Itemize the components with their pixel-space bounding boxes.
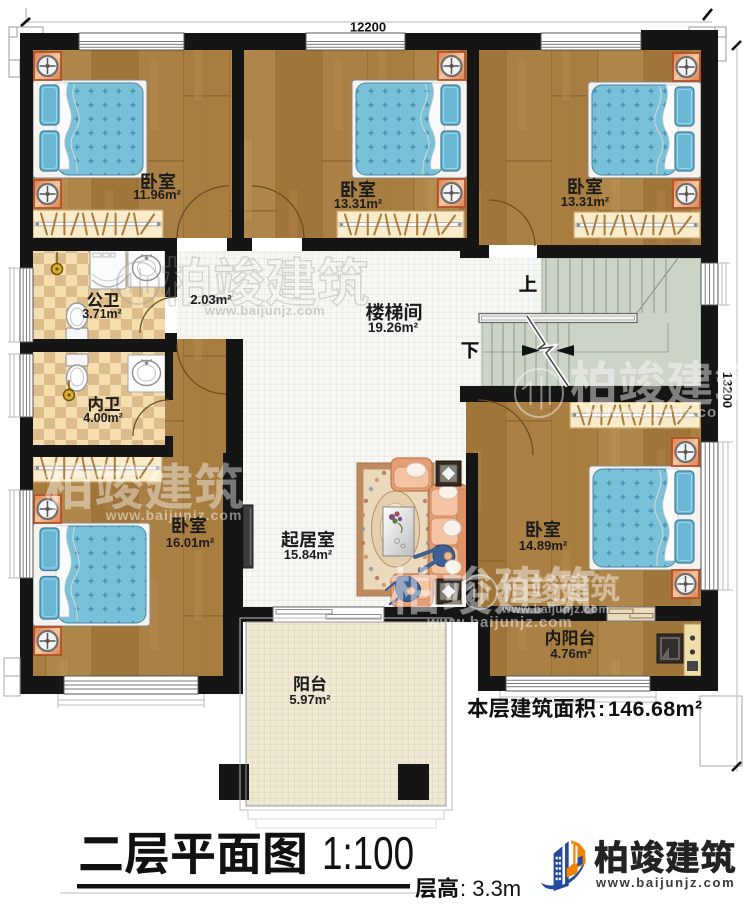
svg-text:www.baijunjz.com: www.baijunjz.com: [595, 875, 735, 890]
svg-text:: 3.3m: : 3.3m: [460, 876, 521, 901]
svg-text:11.96m²: 11.96m²: [133, 187, 181, 202]
svg-text:www.baijunjz.com: www.baijunjz.com: [585, 404, 731, 421]
svg-text:3.71m²: 3.71m²: [82, 307, 122, 321]
svg-text:www.baijunjz.com: www.baijunjz.com: [501, 604, 609, 616]
svg-text:14.89m²: 14.89m²: [519, 538, 568, 553]
svg-text:4.00m²: 4.00m²: [83, 411, 123, 425]
svg-text:16.01m²: 16.01m²: [166, 535, 215, 550]
svg-text:www.baijunjz.com: www.baijunjz.com: [426, 614, 572, 631]
svg-text:13.31m²: 13.31m²: [561, 194, 610, 209]
svg-text:5.97m²: 5.97m²: [289, 692, 331, 707]
svg-text:1:100: 1:100: [322, 827, 414, 879]
svg-text::: :: [598, 697, 605, 721]
svg-text:13.31m²: 13.31m²: [334, 196, 383, 211]
svg-text:146.68m²: 146.68m²: [608, 697, 702, 721]
svg-text:15.84m²: 15.84m²: [284, 547, 333, 562]
svg-text:19.26m²: 19.26m²: [368, 320, 419, 335]
svg-text:12200: 12200: [350, 20, 386, 35]
svg-text:4.76m²: 4.76m²: [550, 646, 592, 661]
svg-text:2.03m²: 2.03m²: [190, 292, 232, 307]
